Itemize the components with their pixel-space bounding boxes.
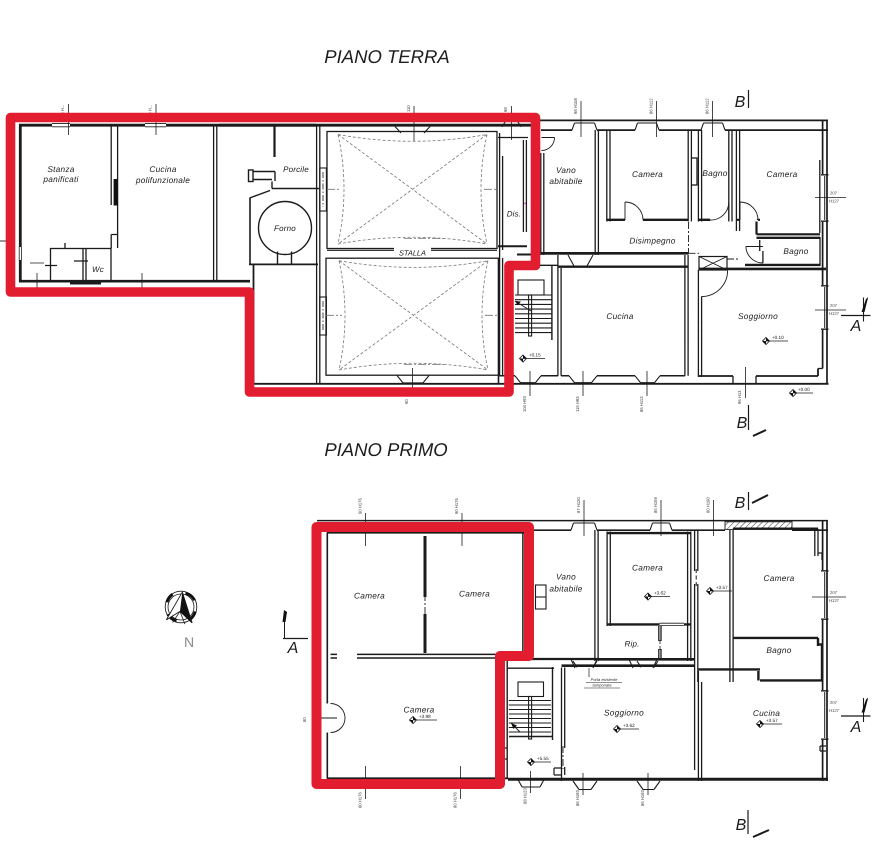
svg-text:H127: H127 — [829, 199, 840, 204]
svg-text:+3.98: +3.98 — [419, 714, 431, 719]
svg-text:Bagno: Bagno — [766, 645, 791, 655]
svg-text:+0.00: +0.00 — [798, 387, 810, 392]
svg-text:Vano: Vano — [556, 165, 576, 175]
svg-text:80 H176: 80 H176 — [358, 791, 363, 808]
svg-text:98 H108: 98 H108 — [573, 97, 578, 114]
svg-text:+0.10: +0.10 — [772, 335, 784, 340]
svg-text:Vano: Vano — [556, 572, 576, 582]
svg-text:80: 80 — [302, 717, 307, 722]
svg-text:+3.57: +3.57 — [766, 718, 778, 723]
svg-text:110: 110 — [406, 105, 411, 112]
svg-text:PIANO TERRA: PIANO TERRA — [324, 46, 449, 67]
svg-text:85 H159: 85 H159 — [653, 496, 658, 513]
svg-text:abitabile: abitabile — [549, 584, 582, 594]
svg-text:Soggiorno: Soggiorno — [738, 311, 778, 321]
svg-text:86 H112: 86 H112 — [705, 98, 710, 114]
svg-text:Camera: Camera — [632, 563, 663, 573]
svg-text:+0,15: +0,15 — [529, 353, 541, 358]
svg-text:80 H176: 80 H176 — [453, 791, 458, 808]
svg-text:+3.62: +3.62 — [654, 591, 666, 596]
svg-text:STALLA: STALLA — [399, 249, 426, 258]
svg-text:115 H93: 115 H93 — [575, 396, 580, 412]
svg-text:H127: H127 — [829, 598, 840, 603]
svg-text:207: 207 — [830, 191, 838, 196]
svg-text:96 H13: 96 H13 — [737, 390, 742, 404]
svg-text:Soggiorno: Soggiorno — [604, 708, 644, 718]
svg-text:Bagno: Bagno — [783, 246, 808, 256]
svg-text:B: B — [736, 817, 747, 834]
svg-text:86 H113: 86 H113 — [639, 396, 644, 412]
svg-text:B: B — [735, 94, 746, 111]
svg-text:Cucina: Cucina — [149, 164, 176, 174]
svg-text:Camera: Camera — [354, 591, 385, 601]
svg-text:90 H176: 90 H176 — [454, 497, 459, 514]
svg-text:abitabile: abitabile — [549, 176, 582, 186]
svg-text:B: B — [737, 415, 748, 432]
svg-text:Disimpegno: Disimpegno — [629, 236, 675, 246]
svg-text:+5.55: +5.55 — [537, 756, 549, 761]
svg-text:Porcile: Porcile — [283, 165, 309, 174]
svg-text:N: N — [184, 634, 194, 650]
svg-text:Bagno: Bagno — [702, 168, 727, 178]
svg-text:Dis.: Dis. — [507, 210, 522, 219]
svg-text:Camera: Camera — [403, 705, 434, 715]
svg-text:207: 207 — [830, 303, 838, 308]
svg-text:Wc: Wc — [92, 265, 104, 274]
svg-text:A: A — [287, 640, 299, 657]
svg-text:90 H176: 90 H176 — [358, 497, 363, 514]
svg-text:polifunzionale: polifunzionale — [135, 175, 190, 185]
svg-text:Camera: Camera — [632, 169, 663, 179]
svg-text:PIANO PRIMO: PIANO PRIMO — [324, 439, 447, 460]
svg-text:86 H112: 86 H112 — [649, 98, 654, 114]
svg-text:Camera: Camera — [459, 589, 490, 599]
svg-text:panificati: panificati — [42, 174, 79, 184]
svg-text:86 H193: 86 H193 — [575, 789, 580, 806]
svg-text:H127: H127 — [829, 311, 840, 316]
svg-text:207: 207 — [830, 590, 838, 595]
svg-text:A: A — [850, 719, 862, 736]
svg-text:207: 207 — [830, 700, 838, 705]
svg-text:tamponata: tamponata — [593, 683, 613, 688]
svg-text:87 H120: 87 H120 — [576, 496, 581, 513]
svg-text:Cucina: Cucina — [606, 311, 633, 321]
svg-text:88 H123: 88 H123 — [523, 787, 528, 804]
svg-text:+3.57: +3.57 — [716, 585, 728, 590]
svg-text:90: 90 — [404, 399, 409, 404]
svg-text:B: B — [735, 495, 746, 512]
svg-text:H127: H127 — [829, 708, 840, 713]
svg-text:Cucina: Cucina — [753, 708, 780, 718]
svg-text:86 H193: 86 H193 — [640, 789, 645, 806]
svg-text:Stanza: Stanza — [47, 164, 74, 174]
svg-text:80 H190: 80 H190 — [706, 496, 711, 513]
svg-text:104 H93: 104 H93 — [522, 395, 527, 412]
svg-text:Forno: Forno — [274, 224, 296, 233]
svg-text:Camera: Camera — [763, 573, 794, 583]
svg-text:Rip.: Rip. — [624, 640, 639, 649]
svg-text:Porta esistente: Porta esistente — [591, 677, 618, 682]
svg-text:Camera: Camera — [766, 169, 797, 179]
svg-text:+3.62: +3.62 — [623, 723, 635, 728]
svg-text:98: 98 — [503, 107, 508, 112]
svg-text:A: A — [850, 318, 862, 335]
